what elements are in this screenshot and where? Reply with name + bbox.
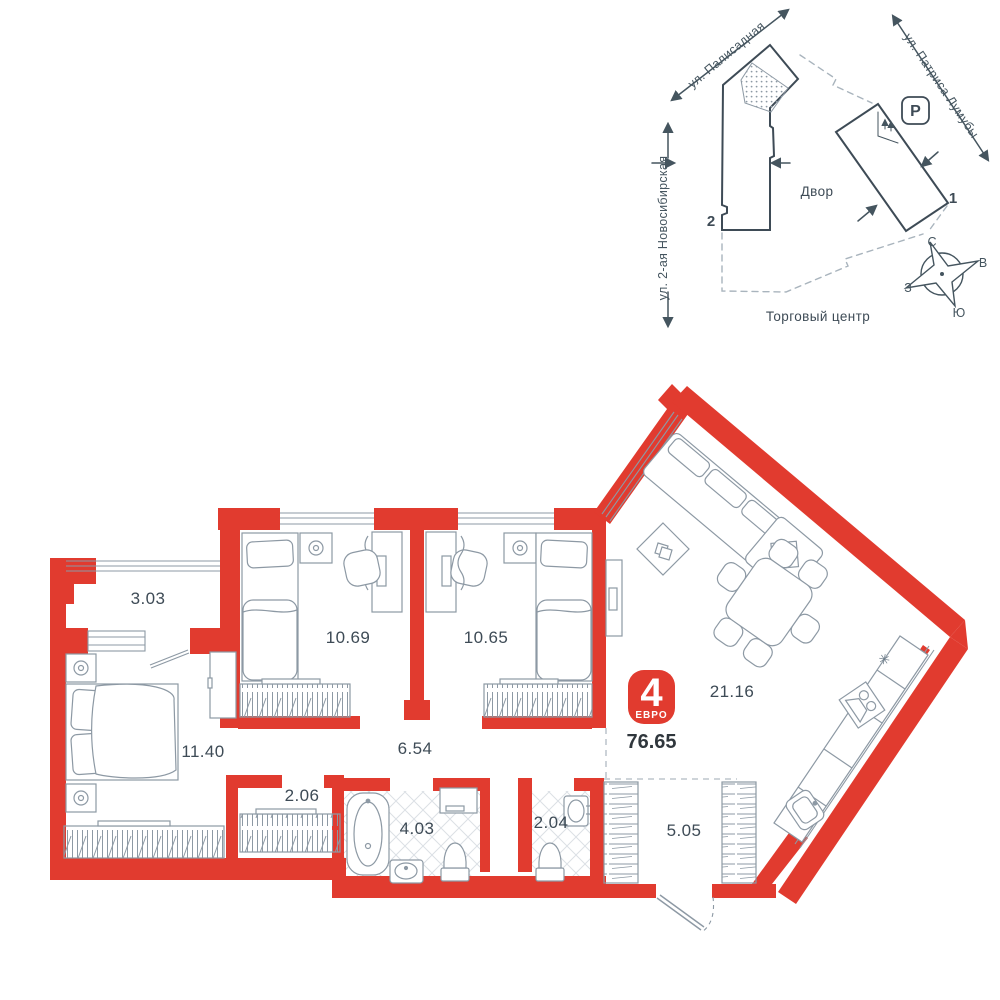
sink-bathroom	[390, 860, 423, 883]
ceiling-light-bedroom-3	[504, 533, 536, 563]
compass-rose: С В З Ю	[904, 235, 987, 320]
building-1-number: 1	[949, 190, 957, 207]
ceiling-light-bedroom-1-top	[66, 654, 96, 682]
compass-east: В	[979, 256, 987, 270]
site-building-2	[722, 45, 798, 230]
room-label-bathroom: 4.03	[400, 819, 435, 838]
wardrobe-entry-right	[722, 782, 756, 883]
plan-svg: ул. Палисадная ул. Патриса Лумубы ул. 2-…	[0, 0, 1000, 1000]
street-label-novosibirskaya: ул. 2-ая Новосибирская	[656, 156, 670, 301]
yard-label: Двор	[801, 184, 834, 199]
site-building-1	[836, 104, 948, 231]
desk-bedroom-3	[426, 532, 489, 612]
compass-north: С	[927, 235, 936, 249]
total-area-value: 76.65	[626, 731, 676, 753]
room-label-bedroom-2: 10.69	[326, 628, 371, 647]
bed-bedroom-3	[536, 533, 592, 681]
wardrobe-bedroom-1	[64, 821, 224, 858]
parking-icon: P	[902, 97, 929, 124]
ceiling-light-bedroom-1-bottom	[66, 784, 96, 812]
badge-type-label: ЕВРО	[635, 710, 667, 721]
floor-plan-page: ул. Палисадная ул. Патриса Лумубы ул. 2-…	[0, 0, 1000, 1000]
compass-west: З	[904, 281, 912, 295]
site-plan: ул. Палисадная ул. Патриса Лумубы ул. 2-…	[652, 10, 988, 326]
room-label-hallway: 6.54	[398, 739, 433, 758]
wardrobe-closet	[240, 809, 340, 852]
room-label-bedroom-3: 10.65	[464, 628, 509, 647]
apartment-badge: 4 ЕВРО 76.65	[626, 670, 676, 753]
desk-bedroom-2	[342, 532, 402, 612]
wardrobe-bedroom-2	[240, 679, 350, 717]
bathtub	[347, 793, 389, 875]
building-2-number: 2	[707, 213, 715, 230]
room-label-entry-hall: 5.05	[667, 821, 702, 840]
washing-machine	[440, 788, 477, 813]
ceiling-light-bedroom-2	[300, 533, 332, 563]
room-label-balcony: 3.03	[131, 589, 166, 608]
parking-letter: P	[910, 103, 921, 120]
bed-bedroom-2	[242, 533, 298, 681]
cabinet-bedroom-1	[208, 652, 236, 718]
tv-unit	[606, 560, 622, 636]
badge-rooms-count: 4	[640, 671, 663, 715]
bed-bedroom-1	[66, 684, 178, 780]
compass-south: Ю	[953, 306, 966, 320]
coffee-table	[637, 523, 689, 575]
mall-label: Торговый центр	[766, 309, 870, 324]
room-label-bedroom-master: 11.40	[181, 742, 224, 761]
room-label-closet: 2.06	[285, 786, 320, 805]
apartment-plan: ✳ 3.03 11.40 10.69 10.65 6.54 2.06 4.03 …	[50, 384, 968, 932]
room-label-kitchen-living: 21.16	[710, 682, 755, 701]
room-label-wc: 2.04	[534, 813, 569, 832]
wardrobe-bedroom-3	[484, 679, 592, 717]
wardrobe-entry-left	[604, 782, 638, 883]
